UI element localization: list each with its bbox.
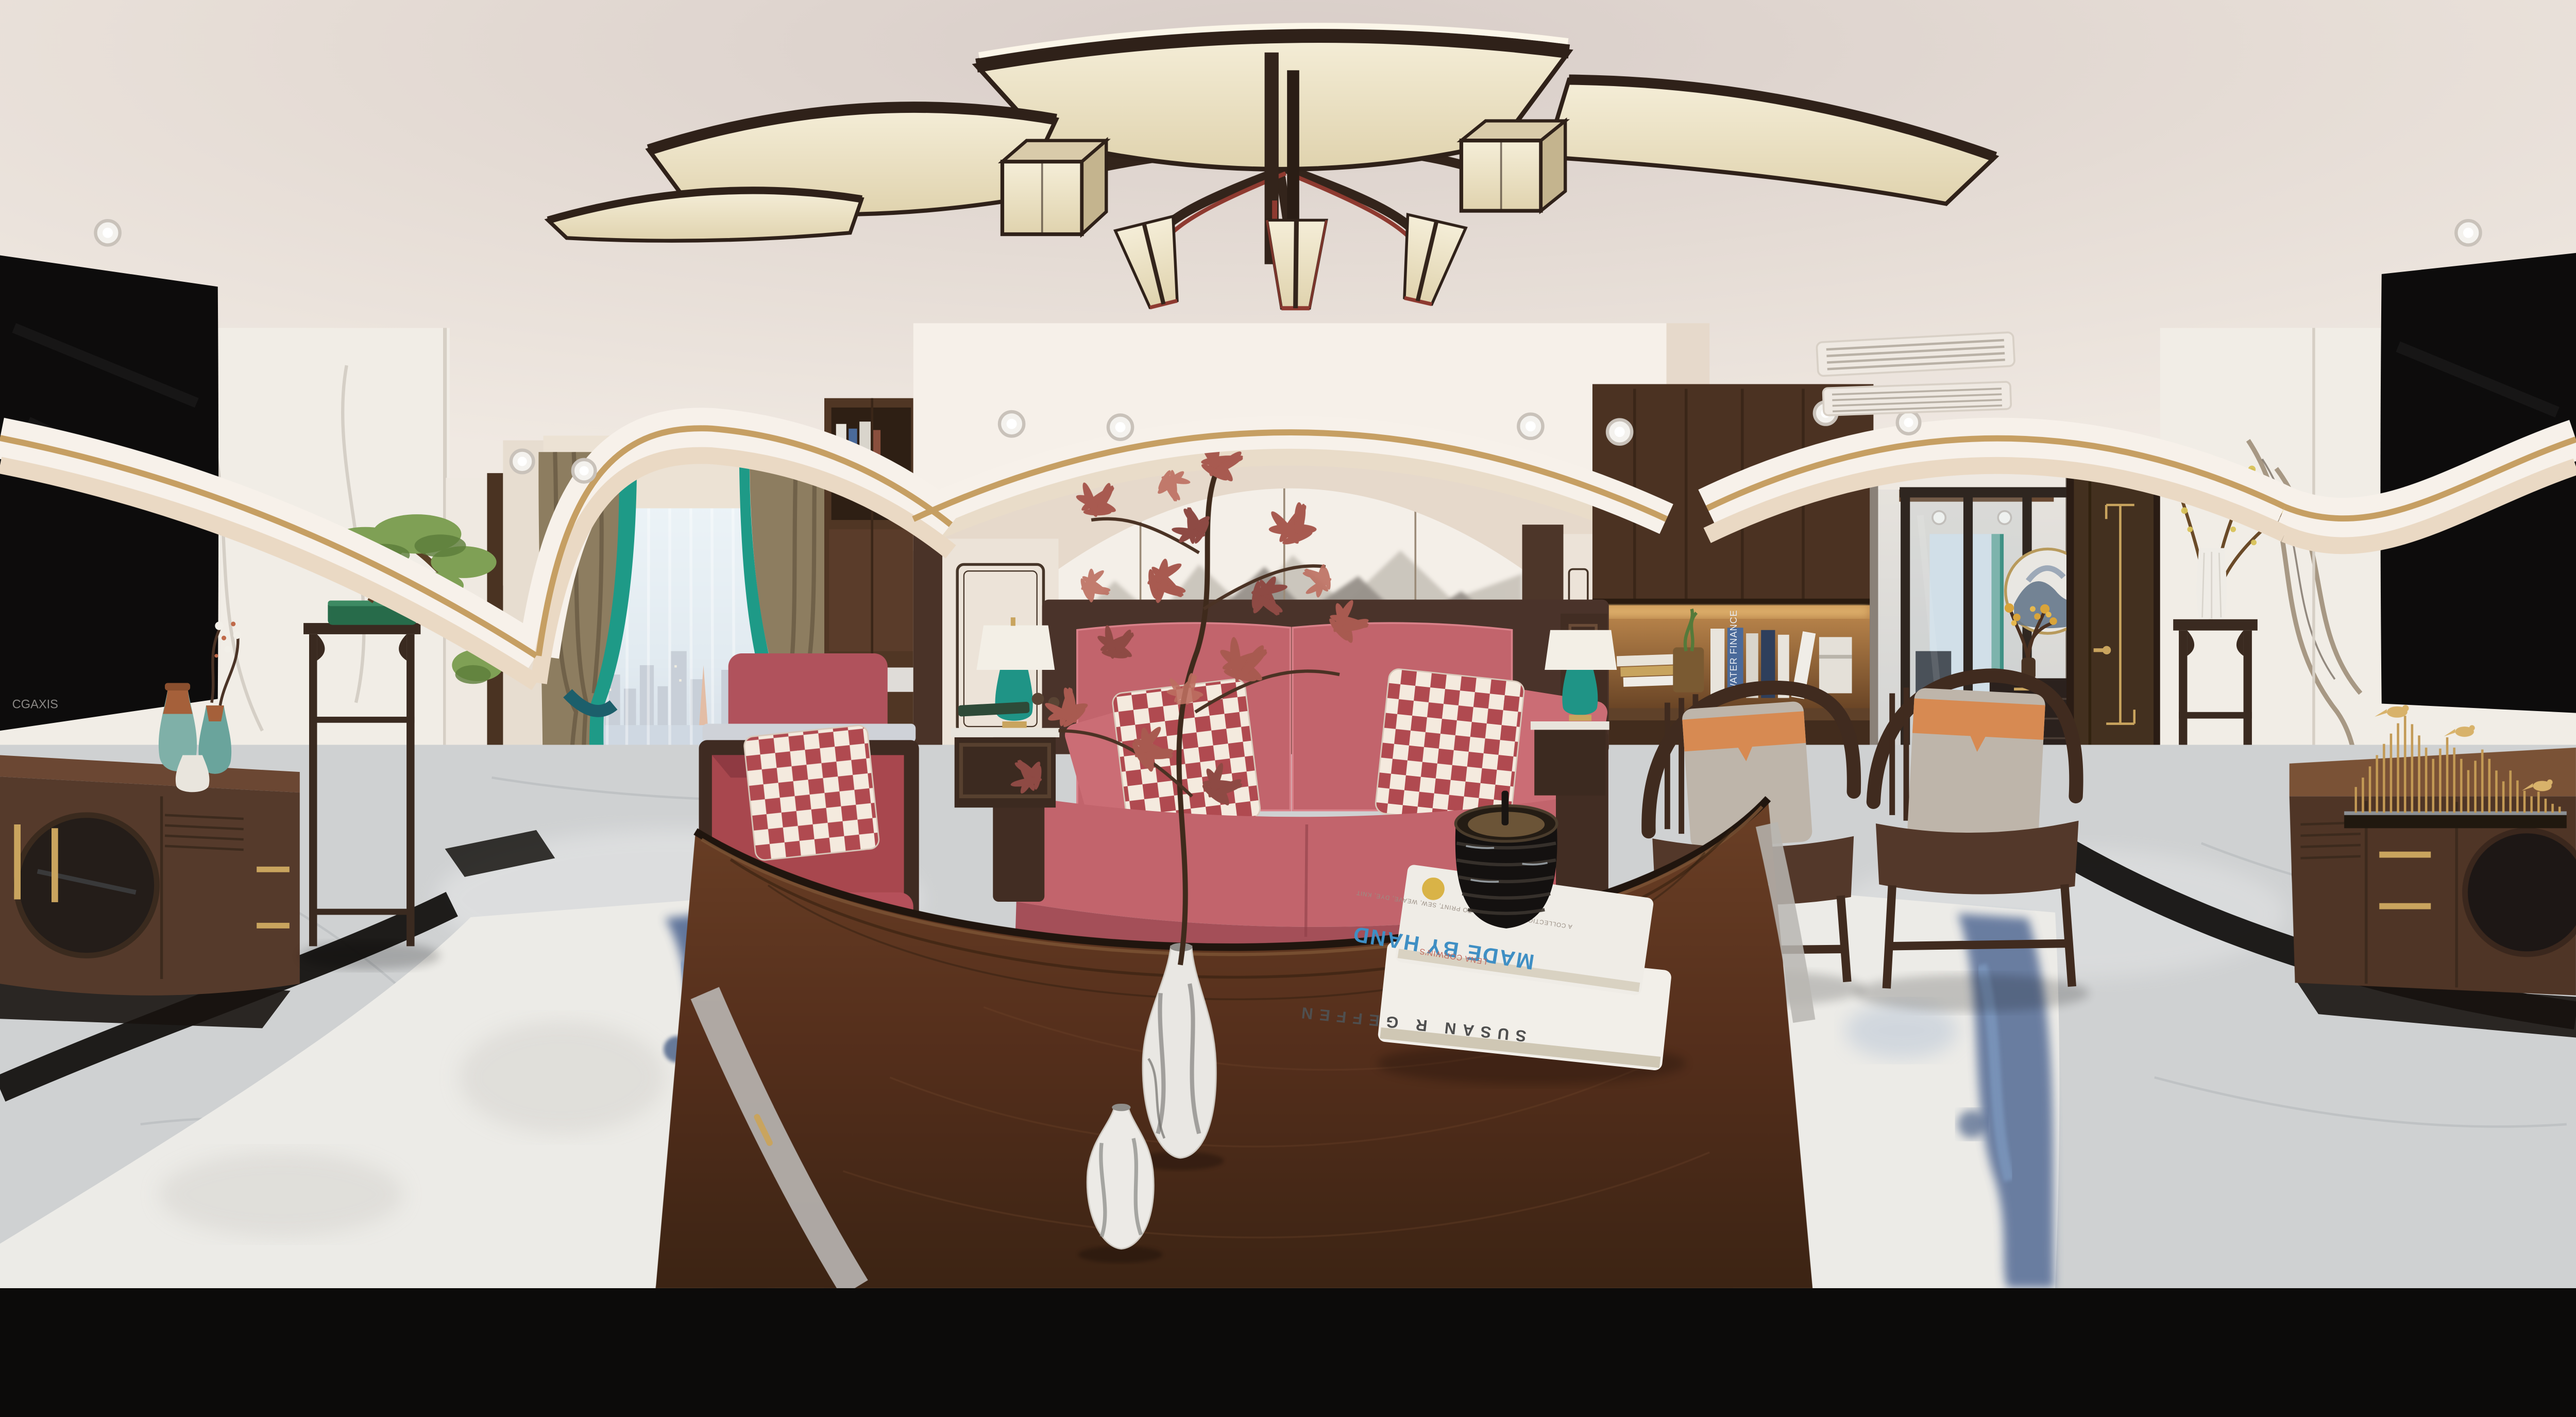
tea-cup bbox=[1032, 693, 1044, 705]
lampshade bbox=[976, 626, 1055, 670]
cube-lantern-right bbox=[1461, 121, 1565, 211]
lamp-base-teal bbox=[1562, 670, 1598, 715]
censer-ladle bbox=[1502, 791, 1509, 825]
cabinet-handle bbox=[14, 824, 21, 899]
downlight-icon bbox=[511, 450, 534, 473]
downlight-icon bbox=[573, 460, 596, 482]
downlight-icon bbox=[1607, 420, 1632, 444]
downlight-icon bbox=[1897, 411, 1920, 434]
cabinet-glass-circle bbox=[2465, 831, 2576, 954]
panorama-stage: CGAXIS bbox=[0, 0, 2576, 1288]
downlight-icon bbox=[2456, 221, 2480, 245]
cabinet-glass-circle bbox=[16, 815, 157, 956]
cube-lantern-left bbox=[1002, 141, 1106, 234]
panorama-scene: CGAXIS bbox=[0, 0, 2576, 1288]
checker-pillow-left bbox=[743, 724, 880, 861]
downlight-icon bbox=[1108, 415, 1132, 439]
downlight-icon bbox=[1518, 414, 1543, 438]
chair-cushion-2 bbox=[1907, 687, 2045, 844]
shelf-pot bbox=[1673, 647, 1704, 692]
vase-small bbox=[176, 755, 210, 792]
downlight-icon bbox=[999, 412, 1024, 436]
ac-vent bbox=[1823, 382, 2011, 415]
cabinet-handle bbox=[2379, 903, 2431, 909]
door-right bbox=[2074, 463, 2154, 761]
shelf-book-spine: WATER FINANCE bbox=[1728, 610, 1739, 692]
tv-left-logo: CGAXIS bbox=[12, 698, 58, 712]
downlight-icon bbox=[95, 221, 120, 245]
cabinet-handle bbox=[2379, 852, 2431, 858]
cabinet-handle bbox=[52, 828, 58, 902]
lampshade bbox=[1545, 630, 1617, 670]
censer-bowl bbox=[1455, 791, 1557, 929]
